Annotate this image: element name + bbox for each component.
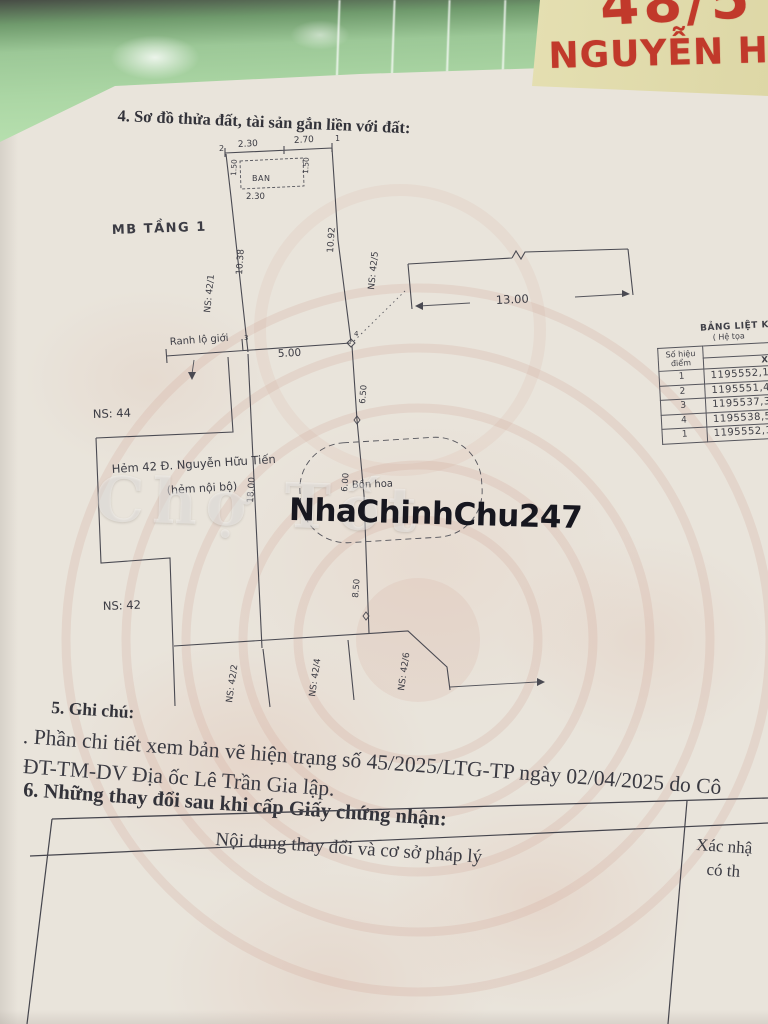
coord-point-id: 1 — [662, 427, 708, 444]
coord-col-point-header: Số hiệu điểm — [658, 346, 704, 371]
plastic-streak — [390, 0, 395, 90]
glare-spot — [110, 35, 200, 80]
point-4-label: 4 — [354, 330, 359, 338]
dim-6-50: 6.50 — [358, 385, 370, 405]
plastic-streak — [502, 0, 507, 75]
dim-8-50: 8.50 — [351, 579, 363, 599]
bottom-arrow-line — [450, 682, 537, 687]
dim-10-38: 10.38 — [235, 249, 247, 276]
dim-13-00: 13.00 — [496, 292, 530, 307]
glare-spot — [290, 20, 350, 50]
point-1-label: 1 — [335, 134, 340, 143]
ns-42-1-label: NS: 42/1 — [203, 274, 217, 313]
road-limit-label: Ranh lộ giới — [169, 332, 229, 348]
dotted-diagonal — [354, 289, 407, 341]
ns-42-label: NS: 42 — [103, 598, 142, 613]
changes-col2-header: Xác nhậ có th — [694, 833, 768, 888]
road-limit-arrow — [192, 360, 194, 374]
ns-42-5-label: NS: 42/5 — [367, 251, 381, 290]
dim-5-00: 5.00 — [278, 347, 302, 360]
cadastral-diagram: MB TẦNG 1 2 2.30 2.70 1 1.50 BAN 1.50 2.… — [0, 130, 768, 710]
balcony-dashed-box — [240, 158, 304, 189]
dim-1-50-right: 1.50 — [301, 157, 311, 174]
dim-2-30-inner: 2.30 — [246, 192, 265, 202]
point-2-label: 2 — [219, 144, 224, 153]
dim-2-70-top: 2.70 — [294, 135, 315, 146]
ns-42-6-label: NS: 42/6 — [397, 652, 412, 692]
section5-title: 5. Ghi chú: — [51, 697, 135, 723]
coordinate-table: BẢNG LIỆT KÊ T ( Hệ tọa Số hiệu điểm X(m… — [656, 316, 768, 444]
ns-44-label: NS: 44 — [93, 406, 132, 421]
dim-10-92: 10.92 — [326, 227, 338, 253]
dim-2-30-top: 2.30 — [238, 139, 259, 150]
diagram-labels: MB TẦNG 1 2 2.30 2.70 1 1.50 BAN 1.50 2.… — [93, 134, 529, 703]
changes-table-top-border — [52, 798, 768, 819]
ns-42-2-label: NS: 42/2 — [225, 664, 240, 704]
changes-table-left-border — [27, 819, 52, 1024]
dim-1-50-left: 1.50 — [229, 159, 239, 176]
plastic-streak — [445, 0, 450, 90]
floor-plan-label: MB TẦNG 1 — [112, 217, 207, 238]
handwritten-name: NGUYỄN H — [548, 30, 768, 77]
balcony-label: BAN — [252, 174, 270, 183]
changes-table-divider — [668, 801, 687, 1024]
photographed-land-certificate: 48/5 NGUYỄN H 4. Sơ đồ thửa đất, tài sản… — [0, 0, 768, 1024]
ns-42-4-label: NS: 42/4 — [308, 658, 323, 698]
point-3-label: 3 — [244, 334, 248, 342]
